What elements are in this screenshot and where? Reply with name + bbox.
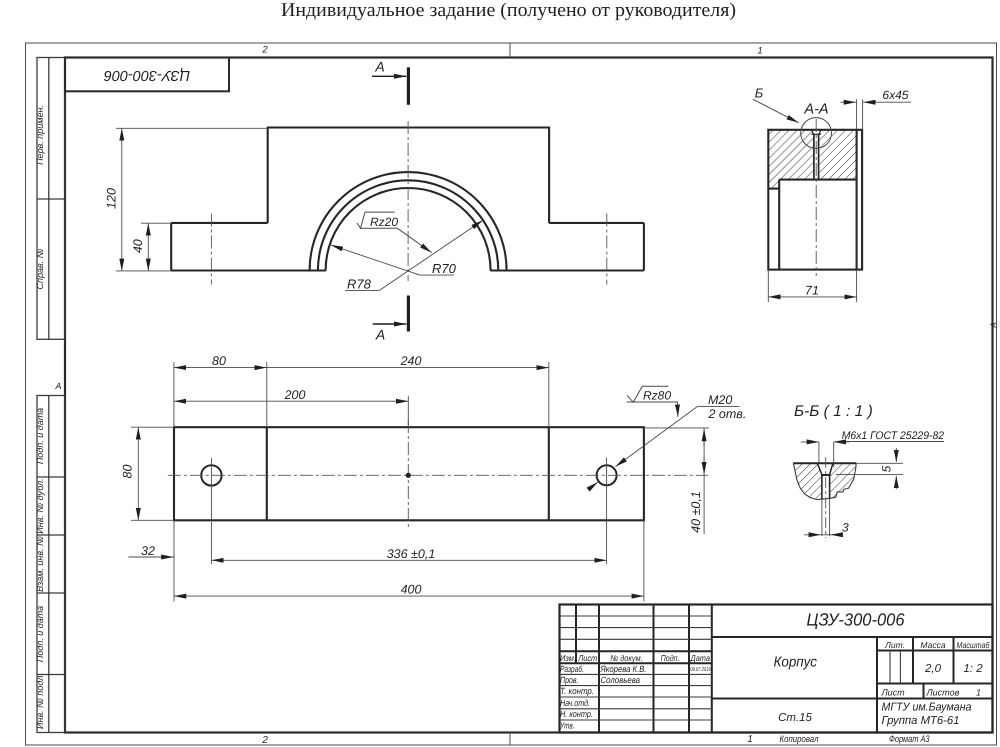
svg-text:1: 2: 1: 2	[963, 663, 983, 675]
svg-text:Подп. и дата: Подп. и дата	[35, 408, 45, 464]
svg-text:Справ. №: Справ. №	[35, 248, 45, 289]
svg-text:Инв. № дубл.: Инв. № дубл.	[35, 478, 45, 533]
svg-text:200: 200	[284, 388, 306, 402]
svg-text:Лист: Лист	[881, 688, 906, 698]
svg-text:R78: R78	[347, 277, 372, 292]
svg-text:Лит.: Лит.	[884, 640, 905, 650]
svg-text:Б: Б	[755, 86, 764, 101]
svg-text:А: А	[374, 59, 384, 75]
svg-text:3: 3	[842, 521, 849, 535]
svg-text:32: 32	[141, 544, 155, 558]
svg-text:Взам. инв. №: Взам. инв. №	[35, 536, 45, 592]
svg-text:Н. контр.: Н. контр.	[560, 709, 593, 719]
svg-text:6х45: 6х45	[882, 88, 908, 102]
svg-text:Соловьева: Соловьева	[601, 675, 641, 685]
svg-text:Копировал: Копировал	[780, 734, 820, 745]
svg-text:ЦЗУ-300-006: ЦЗУ-300-006	[807, 610, 905, 630]
svg-text:Корпус: Корпус	[774, 655, 818, 671]
svg-text:2,0: 2,0	[924, 663, 942, 675]
svg-text:Подп. и дата: Подп. и дата	[35, 606, 45, 662]
svg-text:Ст.15: Ст.15	[778, 712, 812, 724]
svg-text:09.07.2019: 09.07.2019	[690, 667, 711, 673]
svg-text:М20: М20	[708, 393, 732, 407]
svg-text:Пров.: Пров.	[560, 675, 579, 685]
svg-text:Перв. примен.: Перв. примен.	[35, 105, 45, 165]
svg-text:Т. контр.: Т. контр.	[560, 686, 594, 696]
svg-text:Утв.: Утв.	[559, 720, 574, 730]
svg-text:40: 40	[131, 239, 145, 253]
svg-text:2: 2	[261, 735, 268, 746]
svg-text:Б-Б ( 1 : 1 ): Б-Б ( 1 : 1 )	[794, 403, 873, 420]
svg-text:Подп.: Подп.	[661, 653, 680, 663]
svg-text:Листов: Листов	[926, 688, 960, 698]
svg-text:А: А	[989, 322, 998, 328]
svg-text:120: 120	[104, 188, 118, 209]
svg-text:Индивидуальное задание (получе: Индивидуальное задание (получено от руко…	[281, 0, 736, 21]
svg-text:А: А	[375, 327, 385, 343]
svg-text:Разраб.: Разраб.	[560, 664, 584, 674]
svg-text:А-А: А-А	[803, 102, 828, 118]
svg-text:1: 1	[757, 46, 762, 57]
svg-text:400: 400	[401, 583, 422, 597]
svg-text:Нач.отд.: Нач.отд.	[560, 698, 590, 708]
svg-text:Формат А3: Формат А3	[889, 734, 930, 745]
svg-text:№ докум.: № докум.	[610, 653, 643, 663]
svg-text:1: 1	[976, 688, 981, 698]
svg-text:МГТУ им.Баумана: МГТУ им.Баумана	[882, 702, 972, 714]
svg-text:Лист: Лист	[577, 653, 597, 663]
svg-text:40 ±0,1: 40 ±0,1	[689, 491, 703, 533]
svg-text:А: А	[54, 381, 61, 391]
svg-text:80: 80	[212, 354, 226, 368]
svg-text:Группа МТ6-61: Группа МТ6-61	[882, 715, 960, 727]
svg-text:71: 71	[805, 284, 819, 298]
svg-text:Масса: Масса	[920, 640, 945, 650]
svg-text:240: 240	[400, 354, 422, 368]
svg-text:М6х1 ГОСТ 25229-82: М6х1 ГОСТ 25229-82	[842, 430, 944, 442]
svg-text:Масштаб: Масштаб	[957, 640, 991, 650]
svg-text:5: 5	[880, 465, 894, 472]
svg-text:336 ±0,1: 336 ±0,1	[387, 547, 436, 561]
svg-text:Инв. № подл.: Инв. № подл.	[35, 673, 45, 729]
svg-text:Rz20: Rz20	[370, 215, 398, 229]
svg-text:1: 1	[747, 734, 753, 745]
svg-text:Якорева К.В.: Якорева К.В.	[600, 664, 647, 674]
svg-text:ЦЗУ-300-006: ЦЗУ-300-006	[103, 67, 190, 83]
svg-text:80: 80	[121, 465, 135, 479]
svg-text:2 отв.: 2 отв.	[708, 407, 747, 421]
svg-text:2: 2	[261, 45, 268, 56]
svg-text:Дата: Дата	[690, 653, 711, 663]
svg-text:R70: R70	[432, 261, 457, 276]
svg-text:Изм.: Изм.	[560, 653, 576, 663]
svg-text:Rz80: Rz80	[643, 389, 671, 403]
